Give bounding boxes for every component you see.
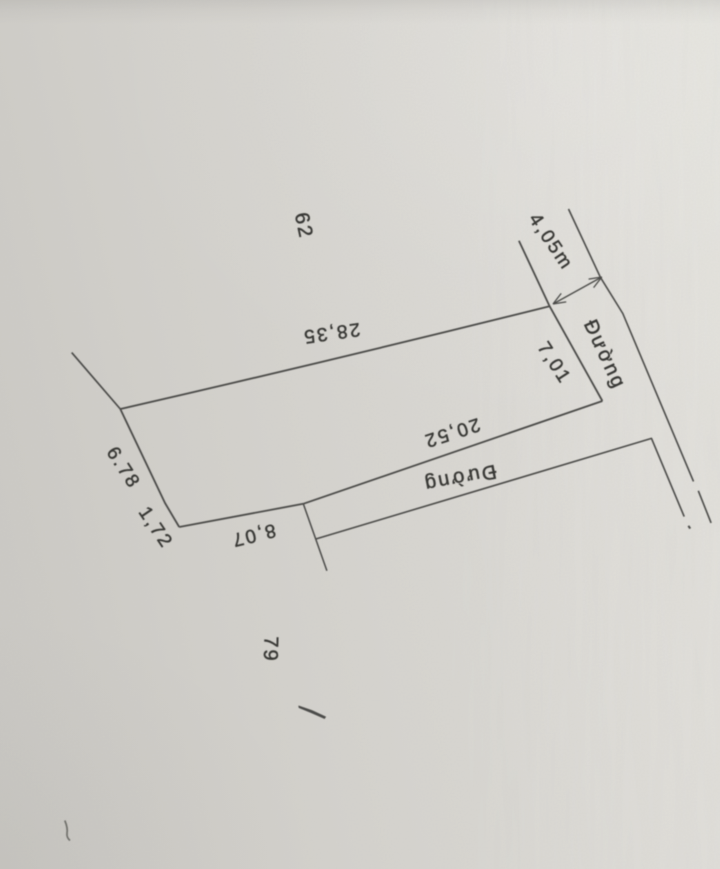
svg-text:79: 79 <box>259 636 282 663</box>
